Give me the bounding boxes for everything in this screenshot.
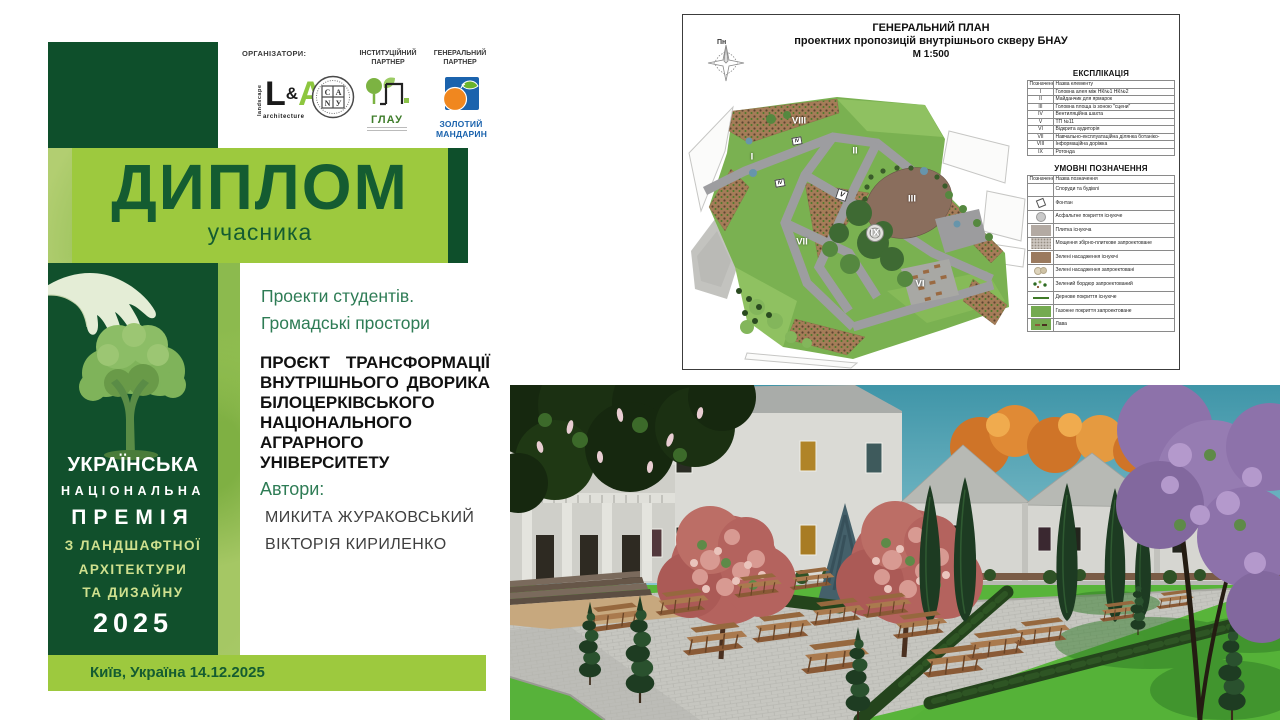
legend-col2: Назва позначення <box>1054 176 1175 184</box>
legend-row: Зелені насадження запроектовані <box>1028 264 1175 278</box>
award-line-4: З ЛАНДШАФТНОЇ <box>48 533 218 559</box>
mandarin-logo-line2: МАНДАРИН <box>436 130 486 140</box>
legend-row: Дернове покриття існуюче <box>1028 291 1175 305</box>
diploma-title: ДИПЛОМ <box>72 154 448 220</box>
map-area-label: VII <box>796 237 808 248</box>
glau-logo: ГЛАУ <box>362 74 412 133</box>
legend-row: Зелений бордюр запроектований <box>1028 278 1175 292</box>
legend-row: Плитка існуюча <box>1028 224 1175 238</box>
poster-page: ОРГАНІЗАТОРИ: ІНСТИТУЦІЙНИЙ ПАРТНЕР ГЕНЕ… <box>0 0 1280 720</box>
legend-symbol-icon <box>1031 198 1051 209</box>
legend-row: Асфальтне покриття існуюче <box>1028 210 1175 224</box>
map-area-label: II <box>852 146 857 157</box>
legend-symbol-icon <box>1031 211 1051 222</box>
canu-stamp-icon: С А N У <box>311 75 355 119</box>
footer-band: Київ, Україна 14.12.2025 <box>48 655 486 691</box>
legend-row: Споруди та будівлі <box>1028 183 1175 197</box>
map-area-label: I <box>751 152 754 163</box>
award-year: 2025 <box>48 605 218 641</box>
map-area-label: IX <box>871 228 880 239</box>
author-2: ВІКТОРІЯ КИРИЛЕНКО <box>265 531 474 558</box>
diploma-top-block <box>48 42 218 148</box>
award-line-6: ТА ДИЗАЙНУ <box>48 581 218 605</box>
masterplan-title-line1: ГЕНЕРАЛЬНИЙ ПЛАН <box>683 22 1179 35</box>
legend-symbol-icon <box>1031 292 1051 303</box>
diploma-subtitle: учасника <box>72 220 448 244</box>
hand-tree-illustration <box>48 263 218 463</box>
general-partner-label: ГЕНЕРАЛЬНИЙ ПАРТНЕР <box>425 49 495 67</box>
explication-table: Позначення Назва елементу I Головна алея… <box>1027 80 1175 156</box>
explication-row: V ТП №11 <box>1028 118 1175 126</box>
legend-row: Газонне покриття запроектоване <box>1028 305 1175 319</box>
legend-row: Зелені насадження існуючі <box>1028 251 1175 265</box>
courtyard-render <box>510 385 1280 720</box>
explication-row: IV Вентиляційна шахта <box>1028 111 1175 119</box>
legend-symbol-icon <box>1031 265 1051 276</box>
la-logo-landscape-text: landscape <box>257 85 263 116</box>
legend-row: Лава <box>1028 318 1175 332</box>
category-block: Проекти студентів. Громадські простори <box>261 283 430 337</box>
svg-text:N: N <box>325 99 331 108</box>
legend-symbol-icon <box>1031 252 1051 263</box>
legend-symbol-icon <box>1031 225 1051 236</box>
diploma-title-band: ДИПЛОМ учасника <box>72 148 448 263</box>
masterplan-scale: М 1:500 <box>683 48 1179 61</box>
courtyard-render-drawing <box>510 385 1280 720</box>
organizers-label: ОРГАНІЗАТОРИ: <box>242 49 306 58</box>
award-line-1: УКРАЇНСЬКА <box>48 451 218 479</box>
map-point-marker: IV <box>791 136 802 146</box>
explication-row: VI Відкрита аудиторія <box>1028 126 1175 134</box>
legend-row: Фонтан <box>1028 197 1175 211</box>
category-line-1: Проекти студентів. <box>261 283 430 310</box>
legend-col1: Позначення <box>1028 176 1054 184</box>
map-point-marker: IV <box>774 178 785 188</box>
explication-row: III Головна площа із зоною "сцени" <box>1028 103 1175 111</box>
la-landscape-architecture-logo: landscape L&A architecture <box>258 76 312 128</box>
legend-symbol-icon <box>1031 279 1051 290</box>
masterplan-title-line2: проектних пропозицій внутрішнього скверу… <box>683 35 1179 48</box>
authors-label: Автори: <box>260 479 324 500</box>
svg-text:У: У <box>336 99 342 108</box>
canu-stamp-logo: С А N У <box>311 75 355 124</box>
plan-side-tables: ЕКСПЛІКАЦІЯ Позначення Назва елементу I … <box>1027 69 1175 332</box>
award-line-3: ПРЕМІЯ <box>48 503 218 533</box>
la-logo-architecture-text: architecture <box>263 114 305 120</box>
project-title: ПРОЄКТ ТРАНСФОРМАЦІЇ ВНУТРІШНЬОГО ДВОРИК… <box>260 353 490 473</box>
map-area-label: VIII <box>792 116 806 127</box>
masterplan-title: ГЕНЕРАЛЬНИЙ ПЛАН проектних пропозицій вн… <box>683 22 1179 61</box>
masterplan-figure: ГЕНЕРАЛЬНИЙ ПЛАН проектних пропозицій вн… <box>682 14 1180 370</box>
category-line-2: Громадські простори <box>261 310 430 337</box>
glau-logo-smallprint <box>367 127 407 133</box>
la-logo-ampersand: & <box>286 84 298 103</box>
legend-table: Позначення Назва позначення Споруди та б… <box>1027 175 1175 332</box>
explication-row: VII Навчально-експлуатаційна ділянка бот… <box>1028 133 1175 141</box>
glau-logo-name: ГЛАУ <box>362 114 412 126</box>
legend-row: Мощення збірно-плиткове запроектоване <box>1028 237 1175 251</box>
la-logo-l: L <box>265 75 286 113</box>
legend-symbol-icon <box>1031 306 1051 317</box>
svg-text:А: А <box>336 88 342 97</box>
map-area-label: III <box>908 194 916 205</box>
explication-col2: Назва елементу <box>1054 81 1175 89</box>
award-line-2: НАЦІОНАЛЬНА <box>48 479 218 503</box>
map-area-label: VI <box>916 279 925 290</box>
award-name-block: УКРАЇНСЬКА НАЦІОНАЛЬНА ПРЕМІЯ З ЛАНДШАФТ… <box>48 451 218 641</box>
mandarin-icon <box>441 77 481 113</box>
compass-rose-icon <box>705 41 747 92</box>
legend-symbol-icon <box>1031 319 1051 330</box>
golden-mandarin-logo: ЗОЛОТИЙ МАНДАРИН <box>436 77 486 139</box>
explication-row: VIII Інформаційна доріжка <box>1028 141 1175 149</box>
institutional-partner-label: ІНСТИТУЦІЙНИЙ ПАРТНЕР <box>353 49 423 67</box>
masterplan-drawing: VIIIIIIIIIIXVIIVI IVIVV <box>687 91 1027 369</box>
legend-title: УМОВНІ ПОЗНАЧЕННЯ <box>1027 164 1175 173</box>
legend-symbol-icon <box>1031 238 1051 249</box>
award-column: УКРАЇНСЬКА НАЦІОНАЛЬНА ПРЕМІЯ З ЛАНДШАФТ… <box>48 263 218 655</box>
award-line-5: АРХІТЕКТУРИ <box>48 559 218 581</box>
glau-trees-house-icon <box>362 74 412 108</box>
svg-text:С: С <box>325 88 331 97</box>
explication-row: IX Ротонда <box>1028 148 1175 156</box>
author-1: МИКИТА ЖУРАКОВСЬКИЙ <box>265 504 474 531</box>
explication-row: I Головна алея між НК№1 НК№2 <box>1028 88 1175 96</box>
legend-symbol-icon <box>1031 184 1051 195</box>
authors-block: МИКИТА ЖУРАКОВСЬКИЙ ВІКТОРІЯ КИРИЛЕНКО <box>265 504 474 558</box>
explication-col1: Позначення <box>1028 81 1054 89</box>
band-accent-bar <box>448 148 468 263</box>
explication-title: ЕКСПЛІКАЦІЯ <box>1027 69 1175 78</box>
explication-row: II Майданчик для ярмарок <box>1028 96 1175 104</box>
